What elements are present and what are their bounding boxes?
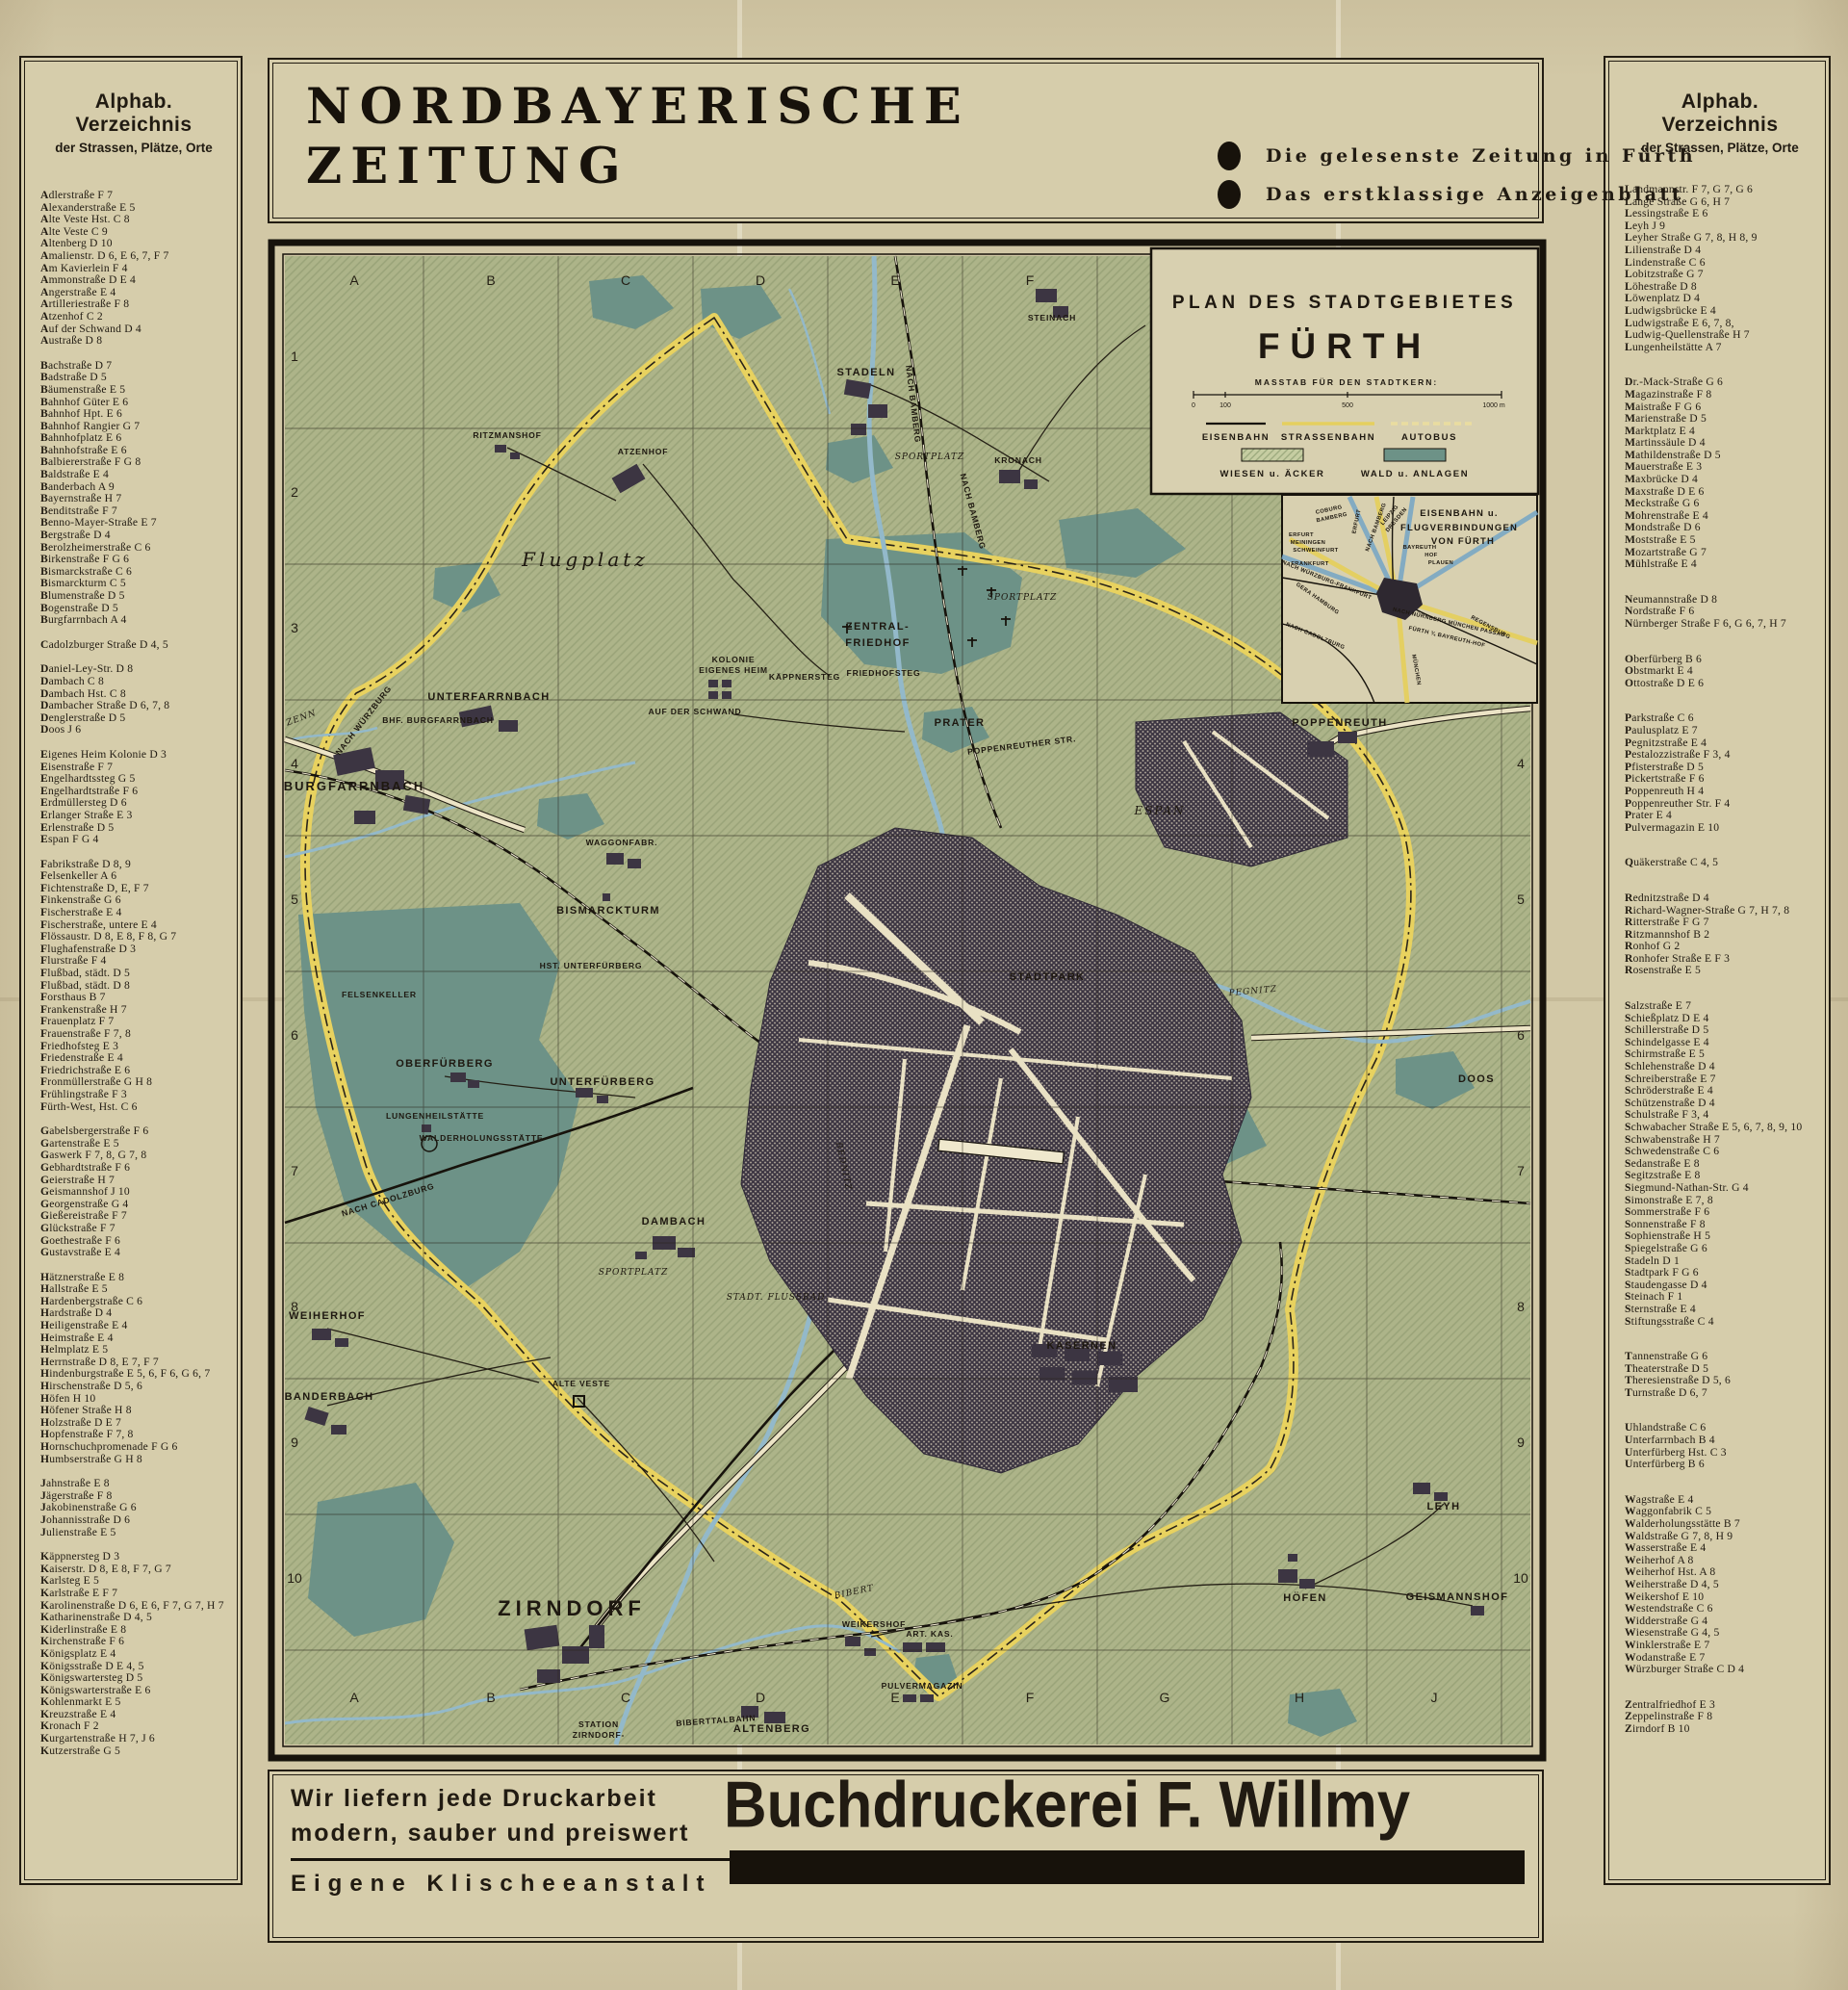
- index-entry: Kutzerstraße G 5: [40, 1745, 227, 1758]
- index-entry: Hallstraße E 5: [40, 1283, 227, 1296]
- grid-col-label: F: [1026, 272, 1035, 288]
- map-label: KOLONIE: [712, 655, 756, 664]
- right-index-panel: Alphab. Verzeichnis der Strassen, Plätze…: [1604, 56, 1831, 1885]
- index-entry: Zirndorf B 10: [1625, 1723, 1815, 1736]
- index-entry: Fischerstraße E 4: [40, 907, 227, 919]
- index-entry: Moststraße E 5: [1625, 534, 1815, 547]
- index-entry: Ludwigsbrücke E 4: [1625, 305, 1815, 318]
- company-underline-bar: [730, 1850, 1525, 1884]
- grid-col-label: D: [756, 1690, 765, 1705]
- index-group: Eigenes Heim Kolonie D 3Eisenstraße F 7E…: [40, 749, 227, 846]
- footer-taglines: Wir liefern jede Druckarbeit modern, sau…: [291, 1781, 753, 1898]
- scale-tick: 500: [1342, 402, 1353, 409]
- index-entry: Bergstraße D 4: [40, 530, 227, 542]
- index-entry: Sternstraße E 4: [1625, 1304, 1815, 1316]
- map-label: SPORTPLATZ: [895, 452, 965, 462]
- grid-row-label: 6: [291, 1027, 298, 1043]
- grid-row-label: 10: [287, 1570, 302, 1586]
- grid-col-label: G: [1160, 1690, 1170, 1705]
- index-entry: Jahnstraße E 8: [40, 1478, 227, 1490]
- grid-row-label: 8: [291, 1299, 298, 1314]
- index-entry: Adlerstraße F 7: [40, 190, 227, 202]
- index-entry: Stadtpark F G 6: [1625, 1267, 1815, 1279]
- map-label: KRONACH: [994, 455, 1042, 465]
- index-entry: Mühlstraße E 4: [1625, 558, 1815, 571]
- grid-col-label: F: [1026, 1690, 1035, 1705]
- index-entry: Doos J 6: [40, 724, 227, 737]
- index-entry: Bahnhof Hpt. E 6: [40, 408, 227, 421]
- map-label: RITZMANSHOF: [473, 430, 541, 440]
- index-entry: Hirschenstraße D 5, 6: [40, 1381, 227, 1393]
- map-label: POPPENREUTH: [1292, 717, 1387, 729]
- index-entry: Forsthaus B 7: [40, 992, 227, 1004]
- map-label: BISMARCKTURM: [556, 905, 660, 917]
- map-label: ALTE VESTE: [552, 1379, 610, 1388]
- index-entry: Gustavstraße E 4: [40, 1247, 227, 1259]
- index-entry: Sommerstraße F 6: [1625, 1206, 1815, 1219]
- masthead-line2: ZEITUNG: [306, 137, 970, 196]
- grid-row-label: 7: [1517, 1163, 1525, 1178]
- index-entry: Dambacher Straße D 6, 7, 8: [40, 700, 227, 712]
- map-label: KÄPPNERSTEG: [769, 672, 840, 682]
- map-label: WEIHERHOF: [289, 1310, 366, 1322]
- map-label: ZIRNDORF-: [573, 1730, 625, 1740]
- grid-row-label: 5: [291, 892, 298, 907]
- scale-tick: 0: [1192, 402, 1195, 409]
- map-label: ESPAN: [1133, 804, 1185, 817]
- index-subtitle: der Strassen, Plätze, Orte: [40, 141, 227, 155]
- index-entry: Prater E 4: [1625, 810, 1815, 822]
- index-entry: Ammonstraße D E 4: [40, 274, 227, 287]
- map-label: EIGENES HEIM: [699, 665, 768, 675]
- map-label: STADT. FLUSSBAD: [727, 1293, 826, 1303]
- index-group: Käppnersteg D 3Kaiserstr. D 8, E 8, F 7,…: [40, 1551, 227, 1757]
- index-entry: Walderholungsstätte B 7: [1625, 1518, 1815, 1531]
- index-entry: Marienstraße D 5: [1625, 413, 1815, 426]
- index-entry: Unterfarrnbach B 4: [1625, 1434, 1815, 1447]
- inset-label: PLAUEN: [1428, 560, 1453, 566]
- map-label: DOOS: [1458, 1073, 1495, 1085]
- map-label: ZIRNDORF: [498, 1596, 646, 1620]
- grid-row-label: 9: [1517, 1434, 1525, 1450]
- connections-inset: EISENBAHN u. FLUGVERBINDUNGEN VON FÜRTH …: [1281, 495, 1537, 703]
- grid-col-label: D: [756, 272, 765, 288]
- legend-label: WIESEN u. ÄCKER: [1220, 469, 1325, 479]
- map-label: LUNGENHEILSTÄTTE: [386, 1111, 484, 1121]
- index-entry: Johannisstraße D 6: [40, 1514, 227, 1527]
- index-entry: Schwabacher Straße E 5, 6, 7, 8, 9, 10: [1625, 1122, 1815, 1134]
- index-entry: Hornschuchpromenade F G 6: [40, 1441, 227, 1454]
- index-entry: Wasserstraße E 4: [1625, 1542, 1815, 1555]
- index-entry: Schlehenstraße D 4: [1625, 1061, 1815, 1073]
- index-entry: Cadolzburger Straße D 4, 5: [40, 639, 227, 652]
- index-entry: Käppnersteg D 3: [40, 1551, 227, 1564]
- index-group: Uhlandstraße C 6Unterfarrnbach B 4Unterf…: [1625, 1422, 1815, 1470]
- bullet-icon: [1218, 142, 1241, 170]
- index-entry: Helmplatz E 5: [40, 1344, 227, 1357]
- grid-col-label: E: [890, 1690, 899, 1705]
- index-group: Zentralfriedhof E 3Zeppelinstraße F 8Zir…: [1625, 1699, 1815, 1736]
- index-entry: Quäkerstraße C 4, 5: [1625, 857, 1815, 869]
- inset-label: HOF: [1424, 553, 1437, 558]
- index-entry: Bayernstraße H 7: [40, 493, 227, 505]
- masthead-line1: NORDBAYERISCHE: [306, 77, 970, 137]
- grid-col-label: B: [486, 1690, 495, 1705]
- index-entry: Salzstraße E 7: [1625, 1000, 1815, 1013]
- index-entry: Alte Veste Hst. C 8: [40, 214, 227, 226]
- index-title: Alphab. Verzeichnis: [40, 90, 227, 137]
- index-entry: Siegmund-Nathan-Str. G 4: [1625, 1182, 1815, 1195]
- index-entry: Lungenheilstätte A 7: [1625, 342, 1815, 354]
- map-label: STATION: [578, 1719, 619, 1729]
- index-entry: Fürth-West, Hst. C 6: [40, 1101, 227, 1114]
- index-entry: Heiligenstraße E 4: [40, 1320, 227, 1332]
- divider: [291, 1858, 741, 1861]
- inset-label: ERFURT: [1289, 532, 1314, 538]
- index-group: Rednitzstraße D 4Richard-Wagner-Straße G…: [1625, 892, 1815, 977]
- index-entry: Bahnhofplatz E 6: [40, 432, 227, 445]
- map-label: DAMBACH: [642, 1216, 706, 1228]
- scale-label: MASSTAB FÜR DEN STADTKERN:: [1255, 377, 1439, 387]
- printer-footer: Wir liefern jede Druckarbeit modern, sau…: [268, 1770, 1544, 1943]
- index-entry: Lilienstraße D 4: [1625, 245, 1815, 257]
- map-label: LEYH: [1427, 1501, 1461, 1512]
- index-entry: Obstmarkt E 4: [1625, 665, 1815, 678]
- index-group: Wagstraße E 4Waggonfabrik C 5Walderholun…: [1625, 1494, 1815, 1676]
- map-label: Flugplatz: [521, 548, 649, 571]
- map-label: ZENTRAL-: [846, 621, 910, 633]
- index-entry: Stiftungsstraße C 4: [1625, 1316, 1815, 1329]
- footer-line3: Eigene Klischeeanstalt: [291, 1871, 753, 1898]
- map-label: HST. UNTERFÜRBERG: [540, 961, 643, 970]
- map-title: FÜRTH: [1258, 326, 1431, 366]
- grid-col-label: J: [1431, 1690, 1438, 1705]
- index-group: Daniel-Ley-Str. D 8Dambach C 8Dambach Hs…: [40, 663, 227, 737]
- index-group: Adlerstraße F 7Alexanderstraße E 5Alte V…: [40, 190, 227, 348]
- map-label: AUF DER SCHWAND: [649, 707, 742, 716]
- index-entry: Westendstraße C 6: [1625, 1603, 1815, 1615]
- index-entry: Ritterstraße F G 7: [1625, 917, 1815, 929]
- map-label: SPORTPLATZ: [988, 593, 1058, 603]
- index-entry: Rosenstraße E 5: [1625, 965, 1815, 977]
- index-group: Parkstraße C 6Paulusplatz E 7Pegnitzstra…: [1625, 712, 1815, 834]
- index-group: Dr.-Mack-Straße G 6Magazinstraße F 8Mais…: [1625, 376, 1815, 571]
- index-entry: Katharinenstraße D 4, 5: [40, 1612, 227, 1624]
- scale-tick: 100: [1219, 402, 1231, 409]
- index-entry: Lobitzstraße G 7: [1625, 269, 1815, 281]
- map-label: STEINACH: [1028, 313, 1076, 323]
- index-group: Hätznerstraße E 8Hallstraße E 5Hardenber…: [40, 1272, 227, 1466]
- footer-line1: Wir liefern jede Druckarbeit: [291, 1781, 753, 1816]
- index-entry: Bäumenstraße E 5: [40, 384, 227, 397]
- index-entry: Würzburger Straße C D 4: [1625, 1664, 1815, 1676]
- index-entry: Poppenreuth H 4: [1625, 786, 1815, 798]
- index-entry: Unterfürberg B 6: [1625, 1459, 1815, 1471]
- inset-title-3: VON FÜRTH: [1431, 536, 1495, 547]
- index-entry: Magazinstraße F 8: [1625, 389, 1815, 401]
- street-index-list: Adlerstraße F 7Alexanderstraße E 5Alte V…: [40, 190, 227, 1757]
- index-entry: Flußbad, städt. D 5: [40, 968, 227, 980]
- inset-label: BAYREUTH: [1403, 545, 1437, 551]
- index-entry: Kurgartenstraße H 7, J 6: [40, 1733, 227, 1745]
- scale-tick: 1000 m: [1482, 402, 1505, 409]
- map-label: HÖFEN: [1283, 1591, 1327, 1604]
- map-label: STADTPARK: [1010, 971, 1086, 983]
- grid-col-label: A: [349, 272, 359, 288]
- masthead-title: NORDBAYERISCHE ZEITUNG: [306, 77, 970, 196]
- index-entry: Königswartersteg D 5: [40, 1672, 227, 1685]
- index-group: Oberfürberg B 6Obstmarkt E 4Ottostraße D…: [1625, 654, 1815, 690]
- grid-row-label: 2: [291, 484, 298, 500]
- index-entry: Turnstraße D 6, 7: [1625, 1387, 1815, 1400]
- map-label: WAGGONFABR.: [586, 838, 658, 847]
- index-entry: Schröderstraße E 4: [1625, 1085, 1815, 1098]
- map-label: GEISMANNSHOF: [1406, 1591, 1509, 1603]
- grid-col-label: C: [621, 272, 630, 288]
- legend-label: EISENBAHN: [1202, 432, 1270, 443]
- grid-col-label: H: [1295, 1690, 1304, 1705]
- taglines: Die gelesenste Zeitung in Fürth Das erst…: [1218, 137, 1696, 214]
- grid-row-label: 4: [1517, 756, 1525, 771]
- index-entry: Flössaustr. D 8, E 8, F 8, G 7: [40, 931, 227, 943]
- grid-row-label: 7: [291, 1163, 298, 1178]
- map-label: WEIKERSHOF: [842, 1619, 906, 1629]
- newspaper-header: NORDBAYERISCHE ZEITUNG Die gelesenste Ze…: [268, 58, 1544, 223]
- index-entry: Blumenstraße D 5: [40, 590, 227, 603]
- grid-row-label: 8: [1517, 1299, 1525, 1314]
- tagline-2: Das erstklassige Anzeigenblatt: [1266, 184, 1683, 205]
- map-label: ALTENBERG: [733, 1723, 810, 1735]
- map-label: FRIEDHOF: [845, 637, 910, 649]
- index-entry: Humbserstraße G H 8: [40, 1454, 227, 1466]
- index-entry: Atzenhof C 2: [40, 311, 227, 323]
- index-entry: Paulusplatz E 7: [1625, 725, 1815, 737]
- index-entry: Dambach C 8: [40, 676, 227, 688]
- index-title: Alphab. Verzeichnis: [1625, 90, 1815, 137]
- map-label: UNTERFÜRBERG: [550, 1075, 654, 1088]
- index-entry: Frühlingstraße F 3: [40, 1089, 227, 1101]
- index-entry: Pulvermagazin E 10: [1625, 822, 1815, 835]
- index-entry: Felsenkeller A 6: [40, 870, 227, 883]
- bullet-icon: [1218, 180, 1241, 209]
- grid-row-label: 1: [291, 349, 298, 364]
- index-entry: Espan F G 4: [40, 834, 227, 846]
- index-entry: Tannenstraße G 6: [1625, 1351, 1815, 1363]
- legend-label: AUTOBUS: [1401, 432, 1457, 443]
- index-group: Tannenstraße G 6Theaterstraße D 5Theresi…: [1625, 1351, 1815, 1399]
- index-entry: Weiherstraße D 4, 5: [1625, 1579, 1815, 1591]
- map-label: BANDERBACH: [285, 1391, 374, 1403]
- grid-col-label: A: [349, 1690, 359, 1705]
- index-entry: Königsplatz E 4: [40, 1648, 227, 1661]
- grid-col-label: C: [621, 1690, 630, 1705]
- index-entry: Baldstraße E 4: [40, 469, 227, 481]
- grid-row-label: 6: [1517, 1027, 1525, 1043]
- index-entry: Kohlenmarkt E 5: [40, 1696, 227, 1709]
- index-entry: Amalienstr. D 6, E 6, 7, F 7: [40, 250, 227, 263]
- index-entry: Winklerstraße E 7: [1625, 1640, 1815, 1652]
- map-title-box: PLAN DES STADTGEBIETES FÜRTH MASSTAB FÜR…: [1151, 248, 1538, 494]
- index-entry: Ottostraße D E 6: [1625, 678, 1815, 690]
- index-entry: Rednitzstraße D 4: [1625, 892, 1815, 905]
- index-entry: Erlanger Straße E 3: [40, 810, 227, 822]
- map-label: WALDERHOLUNGSSTÄTTE: [420, 1133, 544, 1143]
- index-entry: Karlstraße E F 7: [40, 1588, 227, 1600]
- index-entry: Geismannshof J 10: [40, 1186, 227, 1199]
- city-map: FlugplatzRITZMANSHOFATZENHOFSTADELNSTEIN…: [268, 239, 1547, 1762]
- inset-label: SCHWEINFURT: [1293, 548, 1338, 554]
- grid-col-label: E: [890, 272, 899, 288]
- tagline-1: Die gelesenste Zeitung in Fürth: [1266, 145, 1696, 167]
- index-entry: Eigenes Heim Kolonie D 3: [40, 749, 227, 762]
- company-name: Buchdruckerei F. Willmy: [724, 1768, 1410, 1843]
- index-entry: Nürnberger Straße F 6, G 6, 7, H 7: [1625, 618, 1815, 631]
- map-label: SPORTPLATZ: [599, 1268, 669, 1278]
- index-entry: Schillerstraße D 5: [1625, 1024, 1815, 1037]
- grid-row-label: 3: [291, 620, 298, 635]
- index-entry: Gabelsbergerstraße F 6: [40, 1125, 227, 1138]
- index-entry: Austraße D 8: [40, 335, 227, 348]
- index-entry: Meckstraße G 6: [1625, 498, 1815, 510]
- inset-label: MEININGEN: [1291, 540, 1325, 546]
- index-entry: Julienstraße E 5: [40, 1527, 227, 1539]
- map-label: UNTERFARRNBACH: [427, 691, 550, 703]
- index-entry: Birkenstraße F G 6: [40, 554, 227, 566]
- index-entry: Maxbrücke D 4: [1625, 474, 1815, 486]
- index-entry: Ludwig-Quellenstraße H 7: [1625, 329, 1815, 342]
- legend-label: WALD u. ANLAGEN: [1361, 469, 1469, 479]
- grid-col-label: B: [486, 272, 495, 288]
- index-group: Fabrikstraße D 8, 9Felsenkeller A 6Ficht…: [40, 859, 227, 1113]
- grid-row-label: 5: [1517, 892, 1525, 907]
- map-label: KASERNEN: [1047, 1340, 1117, 1352]
- map-label: STADELN: [837, 367, 896, 378]
- index-entry: Höfener Straße H 8: [40, 1405, 227, 1417]
- index-entry: Pestalozzistraße F 3, 4: [1625, 749, 1815, 762]
- map-label: ATZENHOF: [618, 447, 669, 456]
- map-label: ART. KAS.: [906, 1629, 953, 1639]
- index-entry: Martinssäule D 4: [1625, 437, 1815, 450]
- street-index-list: Landmannstr. F 7, G 7, G 6Lange Straße G…: [1625, 184, 1815, 1736]
- index-entry: Frauenstraße F 7, 8: [40, 1028, 227, 1041]
- index-entry: Burgfarrnbach A 4: [40, 614, 227, 627]
- index-entry: Glückstraße F 7: [40, 1223, 227, 1235]
- map-label: OBERFÜRBERG: [396, 1057, 494, 1070]
- index-group: Cadolzburger Straße D 4, 5: [40, 639, 227, 652]
- index-group: Salzstraße E 7Schießplatz D E 4Schillers…: [1625, 1000, 1815, 1328]
- index-entry: Spiegelstraße G 6: [1625, 1243, 1815, 1255]
- inset-title-1: EISENBAHN u.: [1420, 508, 1498, 519]
- grid-row-label: 4: [291, 756, 298, 771]
- map-label: FRIEDHOFSTEG: [847, 668, 921, 678]
- index-group: Gabelsbergerstraße F 6Gartenstraße E 5Ga…: [40, 1125, 227, 1259]
- index-entry: Gebhardtstraße F 6: [40, 1162, 227, 1175]
- inset-title-2: FLUGVERBINDUNGEN: [1400, 523, 1518, 533]
- left-index-panel: Alphab. Verzeichnis der Strassen, Plätze…: [19, 56, 243, 1885]
- index-group: Quäkerstraße C 4, 5: [1625, 857, 1815, 869]
- index-entry: Schwedenstraße C 6: [1625, 1146, 1815, 1158]
- index-entry: Friedenstraße E 4: [40, 1052, 227, 1065]
- map-title-line1: PLAN DES STADTGEBIETES: [1172, 293, 1517, 313]
- map-label: PRATER: [935, 717, 986, 729]
- map-label: BHF. BURGFARRNBACH: [382, 715, 494, 725]
- index-group: Jahnstraße E 8Jägerstraße F 8Jakobinenst…: [40, 1478, 227, 1538]
- index-group: Neumannstraße D 8Nordstraße F 6Nürnberge…: [1625, 594, 1815, 631]
- grid-row-label: 10: [1513, 1570, 1528, 1586]
- index-group: Bachstraße D 7Badstraße D 5Bäumenstraße …: [40, 360, 227, 627]
- index-entry: Engelhardtssteg G 5: [40, 773, 227, 786]
- legend-label: STRASSENBAHN: [1281, 432, 1375, 443]
- index-entry: Ronhof G 2: [1625, 941, 1815, 953]
- map-label: FELSENKELLER: [342, 990, 417, 999]
- map-label: BURGFARRNBACH: [284, 779, 425, 793]
- grid-row-label: 9: [291, 1434, 298, 1450]
- footer-line2: modern, sauber und preiswert: [291, 1816, 753, 1850]
- index-entry: Theresienstraße D 5, 6: [1625, 1375, 1815, 1387]
